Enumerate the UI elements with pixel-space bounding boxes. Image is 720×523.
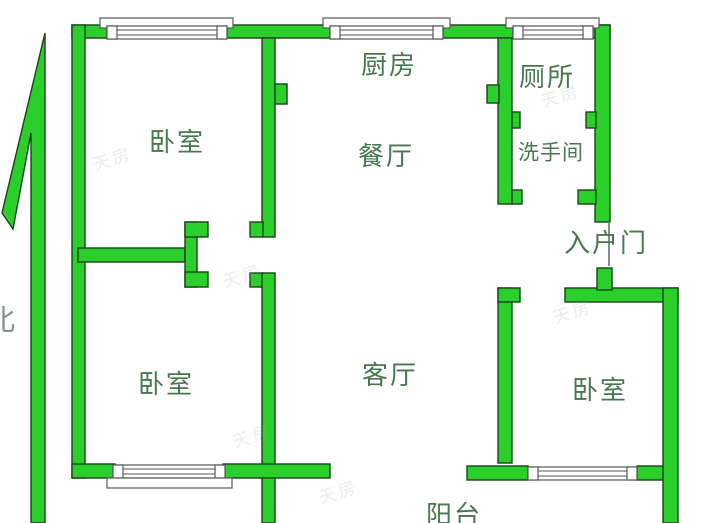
floorplan-canvas: 卧室 厨房 厕所 餐厅 洗手间 入户门 卧室 客厅 卧室 阳台 北 天房 天房 … [0, 0, 720, 523]
room-label-bedroom-bottom-right: 卧室 [572, 378, 628, 404]
compass-north-label: 北 [0, 306, 15, 335]
room-label-toilet: 厕所 [519, 65, 575, 91]
walls [72, 25, 678, 523]
north-arrow [2, 33, 45, 523]
room-label-bedroom-bottom-left: 卧室 [138, 372, 194, 398]
room-label-balcony: 阳台 [426, 503, 482, 523]
room-label-dining: 餐厅 [358, 144, 414, 170]
room-label-entry-door: 入户门 [564, 231, 648, 257]
room-label-kitchen: 厨房 [361, 53, 417, 79]
room-label-bedroom-top-left: 卧室 [149, 130, 205, 156]
room-label-washroom: 洗手间 [518, 143, 584, 164]
room-label-living: 客厅 [362, 363, 418, 389]
